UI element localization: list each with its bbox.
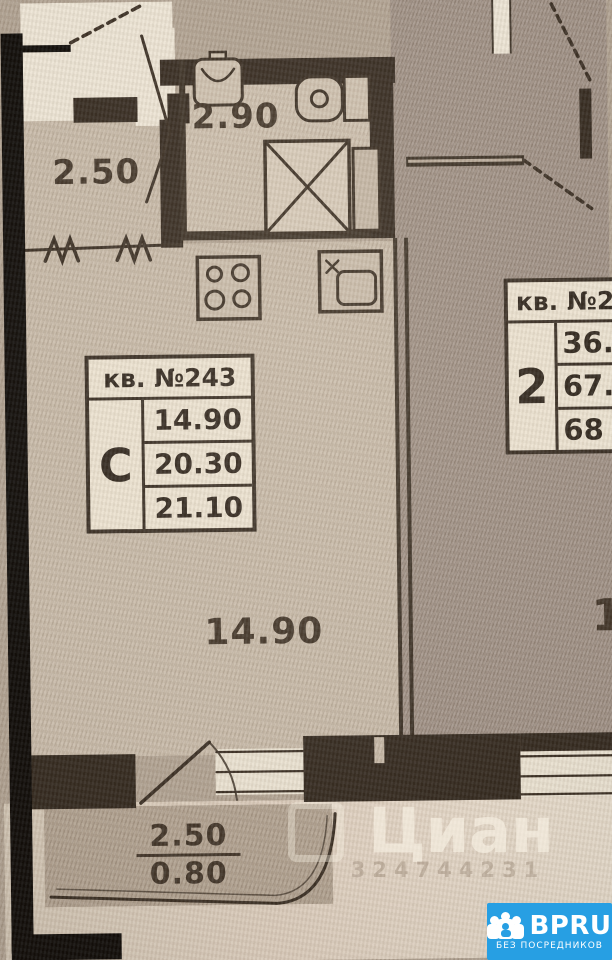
duct-shaft-icon xyxy=(353,148,380,230)
bpru-badge: BPRU БЕЗ ПОСРЕДНИКОВ xyxy=(487,903,612,960)
toilet-icon xyxy=(296,76,370,121)
badge-tagline-text: БЕЗ ПОСРЕДНИКОВ xyxy=(496,942,603,951)
apartment-card-title: кв. №243 xyxy=(89,358,251,401)
apartment-card: кв. №243 С 14.90 20.30 21.10 xyxy=(84,354,256,534)
neighbor-room-label-partial: 1 xyxy=(591,592,612,641)
neighbor-door-swing-icon xyxy=(522,3,592,209)
apartment-card-area-living: 14.90 xyxy=(144,399,252,444)
living-room-label: 14.90 xyxy=(202,612,326,653)
photo-frame-top-tick xyxy=(21,45,71,53)
neighbor-card-area-3: 68 xyxy=(558,408,612,450)
people-group-icon xyxy=(487,912,524,939)
balcony-rail-break-icon xyxy=(25,238,181,262)
neighbor-card: кв. №2 2 36. 67. 68 xyxy=(504,277,612,455)
photo-frame-bottom xyxy=(12,933,122,960)
apartment-card-area-main: 20.30 xyxy=(145,443,253,488)
floor-plan-photo: 2.50 2.90 14.90 2.50 0.80 1 кв. №243 С 1… xyxy=(0,0,612,960)
neighbor-card-area-2: 67. xyxy=(558,365,612,410)
kitchen-sink-icon xyxy=(319,251,382,312)
balcony-lower-value: 0.80 xyxy=(137,856,241,891)
neighbor-card-type: 2 xyxy=(508,323,559,451)
balcony-bottom-label: 2.50 0.80 xyxy=(136,819,241,891)
bathroom-label: 2.90 xyxy=(185,98,285,137)
neighbor-card-title: кв. №2 xyxy=(508,281,612,324)
floor-plan: 2.50 2.90 14.90 2.50 0.80 1 кв. №243 С 1… xyxy=(0,0,612,960)
apartment-card-area-total: 21.10 xyxy=(145,487,252,529)
window-glazing-lines xyxy=(216,747,612,798)
apartment-card-type: С xyxy=(89,400,146,530)
shower-tray-icon xyxy=(265,140,350,233)
badge-brand-text: BPRU xyxy=(529,913,611,939)
neighbor-card-area-1: 36. xyxy=(557,322,612,367)
stove-icon xyxy=(197,257,260,320)
balcony-upper-value: 2.50 xyxy=(136,819,240,857)
loggia-top-label: 2.50 xyxy=(51,154,141,192)
